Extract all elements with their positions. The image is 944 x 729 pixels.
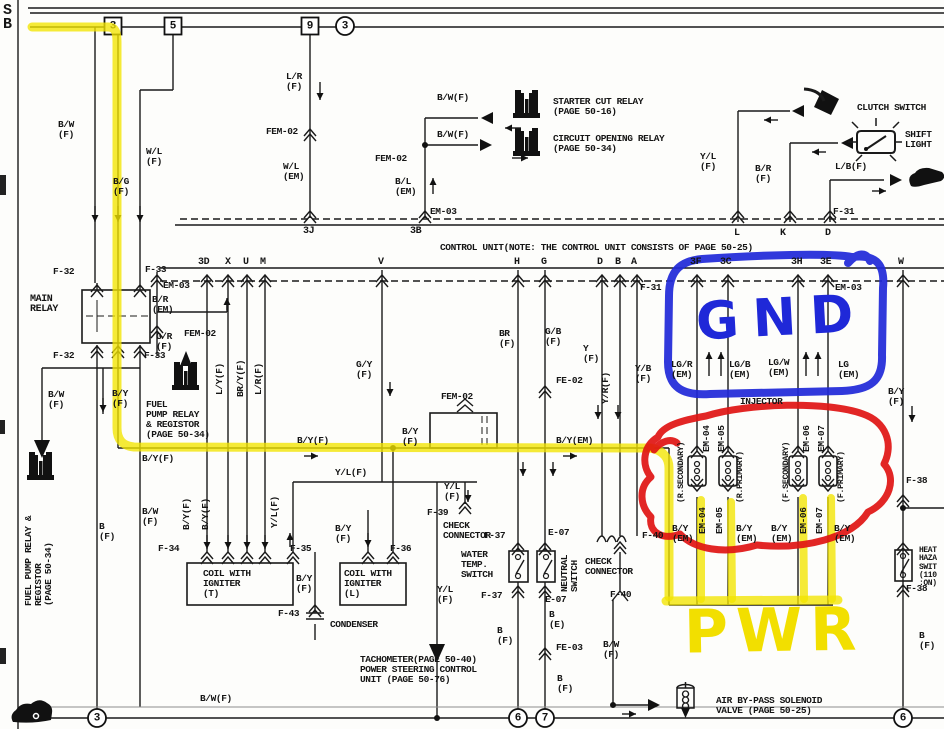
wire-label: 3E: [820, 258, 831, 268]
wire-label: B/Y (F): [296, 574, 312, 594]
condenser-label: CONDENSER: [330, 620, 378, 630]
wire-label: EM-07: [817, 425, 827, 452]
circuit-opening-relay-label: CIRCUIT OPENING RELAY (PAGE 50-34): [553, 134, 664, 154]
air-bypass-label: AIR BY-PASS SOLENOID VALVE (PAGE 50-25): [716, 696, 822, 716]
wire-label: EM-05: [717, 425, 727, 452]
wire-label: EM-03: [163, 281, 190, 291]
wire-label: LG/B (EM): [729, 360, 750, 380]
tachometer-label: TACHOMETER(PAGE 50-40) POWER STEERING CO…: [360, 655, 477, 685]
wire-label: B/Y (F): [112, 389, 128, 409]
wire-label: F-40: [610, 590, 631, 600]
starter-cut-relay-label: STARTER CUT RELAY (PAGE 50-16): [553, 97, 643, 117]
wire-label: 3F: [690, 258, 701, 268]
wire-label: H: [514, 258, 520, 268]
fuel-pump-relay-left-label: FUEL PUMP RELAY & REGISTOR (PAGE 50-34): [24, 516, 54, 606]
wire-label: Y/L(F): [335, 468, 367, 478]
wire-label: FEM-02: [441, 392, 473, 402]
wire-label: D: [597, 258, 603, 268]
wire-label: Y/L (F): [444, 482, 460, 502]
wire-label: EM-07: [815, 507, 825, 534]
wire-label: G/B (F): [545, 327, 561, 347]
wire-label: 3J: [303, 227, 314, 237]
gnd-handwritten-annotation: GND: [695, 284, 869, 353]
wire-label: F-43: [278, 609, 299, 619]
wire-label: L/R(F): [254, 363, 264, 395]
fuel-pump-relay-label: FUEL PUMP RELAY & REGISTOR (PAGE 50-34): [146, 400, 210, 440]
wire-label: L: [734, 229, 740, 239]
wire-label: E-07: [545, 595, 566, 605]
wire-label: M: [260, 258, 266, 268]
wire-label: B/Y (F): [335, 524, 351, 544]
wire-label: L/R (F): [286, 72, 302, 92]
wire-label: B/W (F): [603, 640, 619, 660]
wire-label: B/W(F): [437, 93, 469, 103]
wire-label: B/Y (F): [888, 387, 904, 407]
wire-label: B/Y (EM): [771, 524, 792, 544]
wire-label: F-36: [390, 544, 411, 554]
wire-label: F-33: [145, 265, 166, 275]
wire-label: B (F): [557, 674, 573, 694]
wire-label: EM-04: [698, 507, 708, 534]
wire-label: 3H: [791, 258, 802, 268]
shift-light-label: SHIFT LIGHT: [905, 130, 932, 150]
wire-label: V: [378, 258, 384, 268]
wire-label: FE-02: [556, 376, 583, 386]
wire-label: B/R (F): [755, 164, 771, 184]
wire-label: B/Y(F): [297, 436, 329, 446]
wire-label: F-32: [53, 351, 74, 361]
wire-label: Y (F): [583, 344, 599, 364]
wire-label: B/G (F): [113, 177, 129, 197]
coil-igniter-t-label: COIL WITH IGNITER (T): [203, 569, 251, 599]
wire-label: F-39: [427, 508, 448, 518]
wire-label: EM-06: [799, 507, 809, 534]
wire-label: B/L (EM): [395, 177, 416, 197]
wire-label: LG/W (EM): [768, 358, 789, 378]
wire-label: F-38: [906, 476, 927, 486]
wire-label: G/Y (F): [356, 360, 372, 380]
wire-label: 3C: [720, 258, 731, 268]
wire-label: F-37: [484, 531, 505, 541]
wire-label: E-07: [548, 528, 569, 538]
neutral-switch-label: NEUTRAL SWITCH: [560, 555, 580, 592]
check-connector-f40-label: CHECK CONNECTOR: [585, 557, 633, 577]
wire-label: B (F): [919, 631, 935, 651]
wire-label: F-37: [481, 591, 502, 601]
wire-label: BR (F): [499, 329, 515, 349]
wire-label: EM-06: [802, 425, 812, 452]
wire-label: G/R (F): [156, 332, 172, 352]
wire-label: EM-04: [702, 425, 712, 452]
wire-label: EM-05: [715, 507, 725, 534]
wire-label: B/W (F): [58, 120, 74, 140]
wire-label: G: [541, 258, 547, 268]
wire-label: F-31: [640, 283, 661, 293]
pwr-handwritten-annotation: PWR: [683, 594, 865, 667]
wire-label: B/Y (EM): [834, 524, 855, 544]
water-temp-switch-label: WATER TEMP. SWITCH: [461, 550, 493, 580]
wire-label: B: [615, 258, 621, 268]
coil-igniter-l-label: COIL WITH IGNITER (L): [344, 569, 392, 599]
wire-label: Y/L (F): [700, 152, 716, 172]
wire-label: Y/B (F): [635, 364, 651, 384]
wire-label: 3D: [198, 258, 209, 268]
wire-label: W: [898, 258, 904, 268]
wire-label: K: [780, 229, 786, 239]
wire-label: F-38: [906, 584, 927, 594]
wire-label: F-32: [53, 267, 74, 277]
wire-label: B/Y (EM): [736, 524, 757, 544]
wire-label: L/B(F): [835, 162, 867, 172]
wire-label: B (F): [99, 522, 115, 542]
wire-label: B/W (F): [48, 390, 64, 410]
wire-label: 3B: [410, 227, 421, 237]
wire-label: EM-03: [430, 207, 457, 217]
wire-label: (F.PRIMARY): [837, 451, 846, 503]
wire-label: B (F): [497, 626, 513, 646]
wire-label: B/Y(EM): [556, 436, 593, 446]
wire-label: U: [243, 258, 249, 268]
wire-label: (F.SECONDARY): [782, 442, 791, 503]
wire-label: F-33: [144, 351, 165, 361]
wire-label: FE-03: [556, 643, 583, 653]
wire-label: X: [225, 258, 231, 268]
wire-label: A: [631, 258, 637, 268]
wire-label: FEM-02: [184, 329, 216, 339]
wire-label: Y/L(F): [270, 496, 280, 528]
wire-label: Y/L (F): [437, 585, 453, 605]
wire-label: LG (EM): [838, 360, 859, 380]
wire-label: W/L (EM): [283, 162, 304, 182]
main-relay-label: MAIN RELAY: [30, 295, 58, 316]
wire-label: F-35: [290, 544, 311, 554]
wire-label: B/W(F): [437, 130, 469, 140]
wire-label: B/R (EM): [152, 295, 173, 315]
wire-label: L/Y(F): [215, 363, 225, 395]
wire-label: B/Y(F): [182, 498, 192, 530]
wire-label: B/Y (F): [402, 427, 418, 447]
wire-label: B/Y(F): [142, 454, 174, 464]
wire-label: B/W (F): [142, 507, 158, 527]
wire-label: (R.SECONDARY): [677, 442, 686, 503]
injector-label: INJECTOR: [740, 397, 782, 407]
wire-label: Y/R(F): [601, 372, 611, 404]
wire-label: B (E): [549, 610, 565, 630]
wire-label: B/Y (EM): [672, 524, 693, 544]
wire-label: F-31: [833, 207, 854, 217]
wire-label: F-40: [642, 531, 663, 541]
wire-label: FEM-02: [375, 154, 407, 164]
wiring-diagram-page: 35933676 SBB/W (F)W/L (F)B/G (F)L/R (F)F…: [0, 0, 944, 729]
clutch-switch-label: CLUTCH SWITCH: [857, 103, 926, 113]
wire-label: D: [825, 229, 831, 239]
wire-label: W/L (F): [146, 147, 162, 167]
wire-label: B/Y(F): [201, 498, 211, 530]
wire-label: (R.PRIMARY): [736, 451, 745, 503]
bus-b-label: B: [3, 17, 12, 33]
wire-label: F-34: [158, 544, 179, 554]
wire-label: LG/R (EM): [671, 360, 692, 380]
wire-label: B/W(F): [200, 694, 232, 704]
wire-label: BR/Y(F): [236, 360, 246, 397]
control-unit-label: CONTROL UNIT(NOTE: THE CONTROL UNIT CONS…: [440, 243, 753, 253]
wire-label: FEM-02: [266, 127, 298, 137]
